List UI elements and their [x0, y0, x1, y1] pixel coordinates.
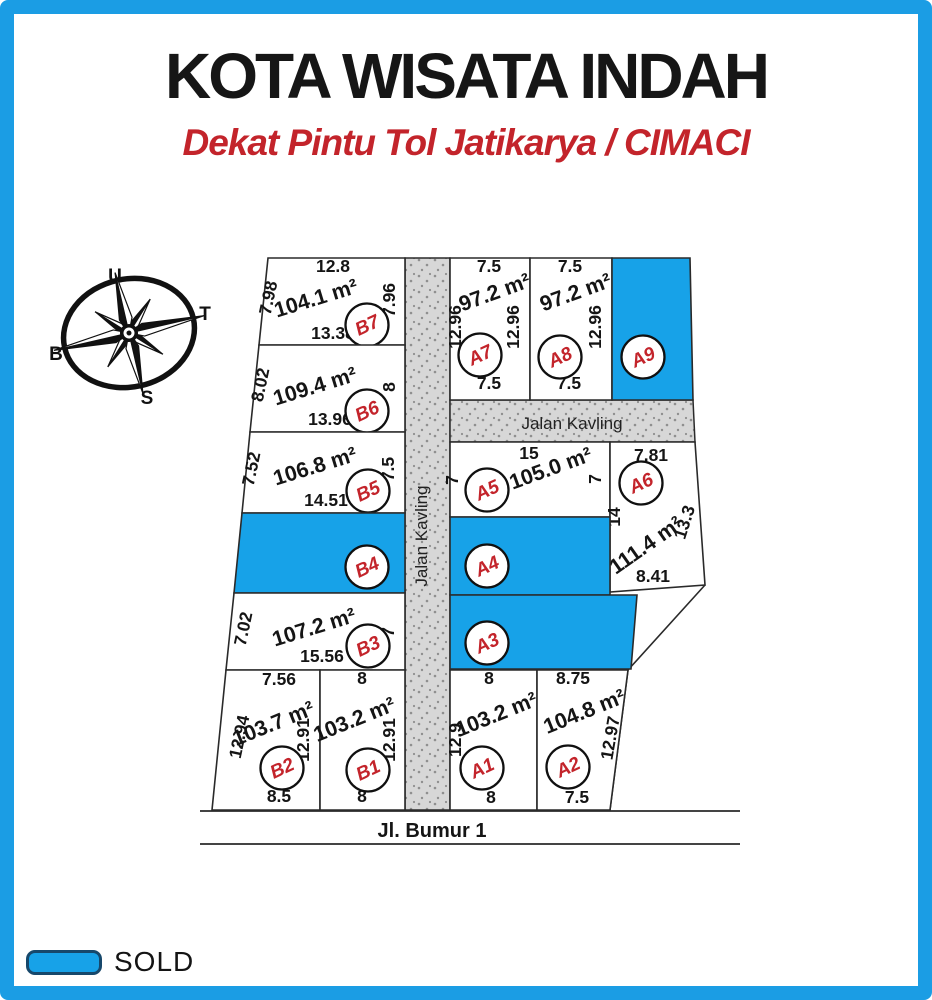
sold-swatch: [26, 950, 102, 975]
dim-label: 8: [379, 382, 399, 392]
plot-a3: A3: [450, 595, 637, 669]
plot-a1: 8103.2 m²12.98A1: [445, 668, 541, 810]
dim-label: 8.75: [556, 668, 590, 688]
plot-b2: 7.56103.7 m²12.9412.918.5B2: [212, 669, 320, 810]
plot-b5: 106.8 m²7.527.514.51B5: [238, 432, 405, 513]
road-jalan-kavling-vertical: Jalan Kavling: [405, 258, 450, 810]
plot-a9: A9: [612, 258, 693, 400]
plot-b1: 8103.2 m²12.918B1: [310, 668, 405, 810]
compass-label-t: T: [199, 304, 211, 325]
dim-label: 12.8: [316, 256, 350, 276]
dim-label: 7.5: [477, 256, 502, 276]
dim-label: 8: [484, 668, 494, 688]
road-jalan-kavling-horizontal: Jalan Kavling: [450, 400, 695, 442]
dim-label: 7: [442, 475, 462, 485]
plot-a4: A4: [450, 517, 610, 595]
compass-label-u: U: [108, 266, 122, 287]
plot-a6: 7.8114111.4 m²13.38.41A6: [604, 442, 705, 592]
dim-label: 15.56: [300, 646, 344, 666]
plot-a8: 7.597.2 m²12.967.5A8: [530, 256, 615, 400]
dim-label: 7.56: [262, 669, 296, 689]
plot-b4: B4: [234, 513, 405, 593]
compass-rose: UTBS: [40, 255, 218, 410]
compass-star: [40, 255, 218, 410]
dim-label: 12.96: [585, 305, 605, 349]
street-label: Jl. Bumur 1: [378, 820, 487, 842]
legend-sold-label: SOLD: [114, 946, 194, 978]
legend: SOLD: [26, 946, 194, 978]
compass-label-s: S: [141, 388, 154, 409]
dim-label: 7: [585, 474, 605, 484]
street-jl-bumur-1: Jl. Bumur 1: [200, 811, 740, 844]
dim-label: 8: [486, 787, 496, 807]
dim-label: 14.51: [304, 490, 348, 510]
site-plan: Jalan KavlingJalan Kavling12.8104.1 m²7.…: [0, 0, 932, 1000]
road-label: Jalan Kavling: [521, 414, 622, 433]
dim-label: 7.5: [565, 787, 590, 807]
plot-a2: 8.75104.8 m²12.977.5A2: [537, 668, 629, 810]
dim-label: 8.41: [636, 566, 670, 586]
plot-b6: 109.4 m²8.02813.96B6: [247, 345, 405, 433]
dim-label: 7.5: [558, 256, 583, 276]
compass-label-b: B: [49, 344, 63, 365]
dim-label: 8: [357, 668, 367, 688]
plot-a5: 15105.0 m²77A5: [442, 442, 610, 517]
plot-b3: 107.2 m²7.02715.56B3: [226, 593, 405, 670]
plot-b7: 12.8104.1 m²7.987.9613.38B7: [255, 256, 405, 347]
road-label: Jalan Kavling: [412, 485, 431, 586]
dim-label: 12.96: [503, 305, 523, 349]
plot-a7: 7.597.2 m²12.9612.967.5A7: [445, 256, 534, 400]
plot-shape-sold: [612, 258, 693, 400]
dim-label: 12.9: [445, 723, 465, 757]
